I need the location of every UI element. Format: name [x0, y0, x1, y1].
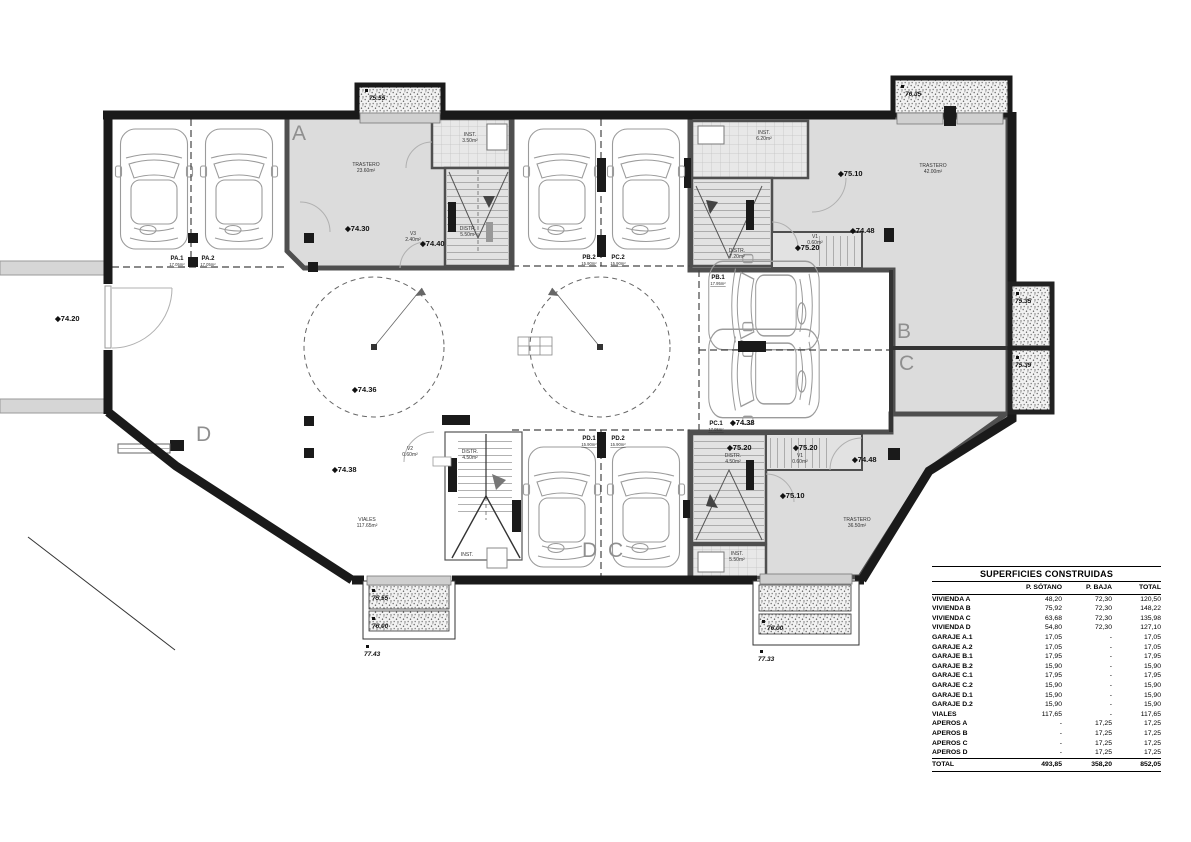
svg-text:4.50m²: 4.50m² — [725, 459, 741, 465]
level-label: ◆74.20 — [54, 314, 80, 323]
svg-text:3.50m²: 3.50m² — [462, 138, 478, 144]
svg-text:0.60m²: 0.60m² — [402, 452, 418, 458]
table-row: GARAJE A.117,05-17,05 — [932, 633, 1161, 643]
level-label: 76.35 — [905, 91, 922, 98]
level-label: ◆74.40 — [419, 239, 445, 248]
car-icon — [608, 129, 685, 249]
row-label: GARAJE B.2 — [932, 662, 1008, 672]
total-total: 852,05 — [1116, 758, 1161, 772]
level-label: ◆75.20 — [726, 443, 752, 452]
svg-text:4.50m²: 4.50m² — [462, 455, 478, 461]
row-value: - — [1008, 719, 1070, 729]
row-label: APEROS D — [932, 748, 1008, 758]
row-value: 17,95 — [1008, 671, 1070, 681]
table-row: GARAJE D.115,90-15,90 — [932, 691, 1161, 701]
row-value: - — [1070, 700, 1116, 710]
section-letter-a: A — [292, 122, 306, 145]
row-value: 72,30 — [1070, 604, 1116, 614]
total-sotano: 493,85 — [1008, 758, 1070, 772]
level-label: 75.55 — [369, 95, 386, 102]
row-value: - — [1070, 633, 1116, 643]
row-value: - — [1070, 643, 1116, 653]
table-row: GARAJE D.215,90-15,90 — [932, 700, 1161, 710]
svg-text:23.60m²: 23.60m² — [357, 168, 376, 174]
table-row: VIVIENDA B75,9272,30148,22 — [932, 604, 1161, 614]
table-row: APEROS A-17,2517,25 — [932, 719, 1161, 729]
table-row: GARAJE B.215,90-15,90 — [932, 662, 1161, 672]
row-value: 148,22 — [1116, 604, 1161, 614]
table-body: VIVIENDA A48,2072,30120,50VIVIENDA B75,9… — [932, 594, 1161, 758]
section-letter-c: C — [899, 352, 914, 375]
row-label: GARAJE D.1 — [932, 691, 1008, 701]
row-value: 117,65 — [1116, 710, 1161, 720]
entry-gate — [105, 286, 170, 453]
table-row: VIVIENDA A48,2072,30120,50 — [932, 594, 1161, 604]
section-letter-d-mid: D — [582, 539, 597, 562]
level-label: ◆74.36 — [351, 385, 377, 394]
row-value: 72,30 — [1070, 594, 1116, 604]
row-value: 135,98 — [1116, 614, 1161, 624]
surfaces-table: SUPERFICIES CONSTRUIDAS P. SÓTANO P. BAJ… — [932, 566, 1161, 772]
drain-grid — [518, 337, 552, 355]
row-value: 117,65 — [1008, 710, 1070, 720]
table-header-total: TOTAL — [1116, 582, 1161, 594]
row-value: 15,90 — [1008, 681, 1070, 691]
row-value: - — [1070, 662, 1116, 672]
level-label: ◆75.20 — [792, 443, 818, 452]
table-title: SUPERFICIES CONSTRUIDAS — [932, 567, 1161, 582]
row-value: 72,30 — [1070, 623, 1116, 633]
row-value: 48,20 — [1008, 594, 1070, 604]
car-icon — [116, 129, 193, 249]
row-value: - — [1070, 710, 1116, 720]
level-label: ◆74.38 — [729, 418, 755, 427]
row-value: 15,90 — [1116, 691, 1161, 701]
table-row: APEROS B-17,2517,25 — [932, 729, 1161, 739]
row-value: - — [1008, 739, 1070, 749]
row-label: GARAJE C.2 — [932, 681, 1008, 691]
row-value: 17,25 — [1070, 739, 1116, 749]
row-label: VIALES — [932, 710, 1008, 720]
row-value: 17,25 — [1116, 748, 1161, 758]
turning-circles — [304, 277, 670, 417]
row-value: - — [1070, 691, 1116, 701]
svg-text:6.20m²: 6.20m² — [756, 136, 772, 142]
row-value: 17,05 — [1008, 633, 1070, 643]
table-header-empty — [932, 582, 1008, 594]
stairwell-a — [445, 168, 510, 266]
table-row: VIVIENDA D54,8072,30127,10 — [932, 623, 1161, 633]
table-header-sotano: P. SÓTANO — [1008, 582, 1070, 594]
row-label: VIVIENDA C — [932, 614, 1008, 624]
table-header-row: P. SÓTANO P. BAJA TOTAL — [932, 582, 1161, 594]
row-value: 17,25 — [1070, 729, 1116, 739]
svg-text:15.90m²: 15.90m² — [581, 442, 597, 447]
level-label: ◆75.10 — [837, 169, 863, 178]
table-row: VIALES117,65-117,65 — [932, 710, 1161, 720]
section-letter-b: B — [897, 320, 911, 343]
car-icon — [524, 129, 601, 249]
level-label: 76.00 — [372, 623, 389, 630]
row-value: 15,90 — [1116, 662, 1161, 672]
car-icon — [709, 323, 819, 425]
svg-text:15.90m²: 15.90m² — [610, 442, 626, 447]
table-row: APEROS D-17,2517,25 — [932, 748, 1161, 758]
svg-text:17.05m²: 17.05m² — [200, 262, 216, 267]
row-label: VIVIENDA A — [932, 594, 1008, 604]
row-label: GARAJE B.1 — [932, 652, 1008, 662]
svg-text:117.65m²: 117.65m² — [357, 523, 378, 529]
row-value: 17,05 — [1008, 643, 1070, 653]
row-label: APEROS B — [932, 729, 1008, 739]
row-label: APEROS A — [932, 719, 1008, 729]
lift-pit — [487, 548, 507, 568]
row-value: 17,95 — [1008, 652, 1070, 662]
table-row: GARAJE B.117,95-17,95 — [932, 652, 1161, 662]
svg-text:0.60m²: 0.60m² — [792, 459, 808, 465]
svg-text:15.90m²: 15.90m² — [610, 261, 626, 266]
svg-text:15.90m²: 15.90m² — [581, 261, 597, 266]
section-letter-d: D — [196, 423, 211, 446]
section-letter-c-mid: C — [608, 539, 623, 562]
svg-text:42.00m²: 42.00m² — [924, 169, 943, 175]
row-label: GARAJE A.1 — [932, 633, 1008, 643]
level-label: 75.55 — [372, 595, 389, 602]
site-retaining-walls — [0, 261, 175, 650]
row-value: - — [1070, 671, 1116, 681]
table-row: GARAJE C.215,90-15,90 — [932, 681, 1161, 691]
level-label: 76.00 — [767, 625, 784, 632]
level-label: ◆74.30 — [344, 224, 370, 233]
level-label: ◆74.48 — [849, 226, 875, 235]
row-value: 15,90 — [1008, 691, 1070, 701]
total-baja: 358,20 — [1070, 758, 1116, 772]
level-label: 75.35 — [1015, 298, 1032, 305]
row-value: 17,25 — [1116, 719, 1161, 729]
row-value: - — [1070, 681, 1116, 691]
svg-text:17.95m²: 17.95m² — [710, 281, 726, 286]
level-label: ◆74.38 — [331, 465, 357, 474]
total-label: TOTAL — [932, 758, 1008, 772]
row-value: 63,68 — [1008, 614, 1070, 624]
level-label: 75.39 — [1015, 362, 1032, 369]
row-value: 17,05 — [1116, 643, 1161, 653]
row-value: 72,30 — [1070, 614, 1116, 624]
table-row: GARAJE C.117,95-17,95 — [932, 671, 1161, 681]
row-value: 17,05 — [1116, 633, 1161, 643]
table-row: APEROS C-17,2517,25 — [932, 739, 1161, 749]
svg-text:7.20m²: 7.20m² — [729, 254, 745, 260]
car-icon — [201, 129, 278, 249]
row-value: - — [1008, 729, 1070, 739]
row-value: 17,25 — [1070, 748, 1116, 758]
row-label: GARAJE D.2 — [932, 700, 1008, 710]
row-value: 54,80 — [1008, 623, 1070, 633]
level-label: 77.33 — [758, 656, 775, 663]
svg-text:36.50m²: 36.50m² — [848, 523, 867, 529]
row-value: 75,92 — [1008, 604, 1070, 614]
level-label: 77.43 — [364, 651, 381, 658]
table-header-baja: P. BAJA — [1070, 582, 1116, 594]
floor-plan-page: A B C D D C ◆74.20 ◆74.30 ◆74.40 ◆74.36 … — [0, 0, 1191, 842]
row-label: VIVIENDA B — [932, 604, 1008, 614]
svg-text:5.50m²: 5.50m² — [460, 232, 476, 238]
level-label: ◆74.48 — [851, 455, 877, 464]
svg-text:17.05m²: 17.05m² — [169, 262, 185, 267]
row-value: 17,25 — [1070, 719, 1116, 729]
row-value: 15,90 — [1008, 662, 1070, 672]
row-value: 15,90 — [1116, 681, 1161, 691]
svg-text:5.50m²: 5.50m² — [729, 557, 745, 563]
row-label: APEROS C — [932, 739, 1008, 749]
row-value: 15,90 — [1008, 700, 1070, 710]
row-value: 17,95 — [1116, 671, 1161, 681]
row-label: GARAJE A.2 — [932, 643, 1008, 653]
row-label: GARAJE C.1 — [932, 671, 1008, 681]
row-value: 120,50 — [1116, 594, 1161, 604]
row-value: 17,25 — [1116, 729, 1161, 739]
table-total-row: TOTAL 493,85 358,20 852,05 — [932, 758, 1161, 772]
table-row: VIVIENDA C63,6872,30135,98 — [932, 614, 1161, 624]
svg-text:0.60m²: 0.60m² — [807, 240, 823, 246]
row-value: 127,10 — [1116, 623, 1161, 633]
row-value: - — [1070, 652, 1116, 662]
svg-text:2.40m²: 2.40m² — [405, 237, 421, 243]
row-label: VIVIENDA D — [932, 623, 1008, 633]
row-value: - — [1008, 748, 1070, 758]
row-value: 15,90 — [1116, 700, 1161, 710]
row-value: 17,95 — [1116, 652, 1161, 662]
table-row: GARAJE A.217,05-17,05 — [932, 643, 1161, 653]
level-label: ◆75.10 — [779, 491, 805, 500]
svg-text:17.95m²: 17.95m² — [708, 427, 724, 432]
row-value: 17,25 — [1116, 739, 1161, 749]
svg-text:INST.: INST. — [461, 552, 473, 558]
